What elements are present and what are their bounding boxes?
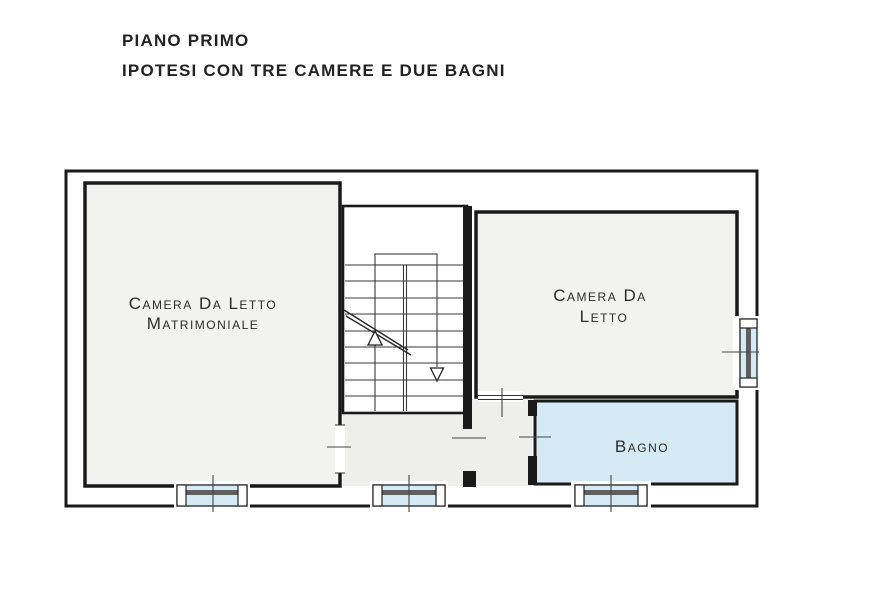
bathroom-wall-upper bbox=[528, 400, 537, 416]
label-master-bedroom-line2: Matrimoniale bbox=[147, 314, 260, 333]
bathroom-wall-lower bbox=[528, 456, 537, 485]
room-master-bedroom bbox=[85, 183, 340, 486]
stairwell bbox=[343, 206, 467, 413]
label-bedroom-line1: Camera Da bbox=[553, 286, 646, 305]
label-bathroom: Bagno bbox=[615, 437, 669, 456]
stair-right-wall-stub bbox=[463, 471, 476, 487]
label-master-bedroom-line1: Camera Da Letto bbox=[129, 294, 277, 313]
label-bedroom-line2: Letto bbox=[580, 307, 629, 326]
stair-right-wall bbox=[463, 206, 472, 429]
floor-plan-page: PIANO PRIMO IPOTESI CON TRE CAMERE E DUE… bbox=[0, 0, 880, 614]
floor-plan-drawing: Camera Da Letto Matrimoniale Camera Da L… bbox=[0, 0, 880, 614]
